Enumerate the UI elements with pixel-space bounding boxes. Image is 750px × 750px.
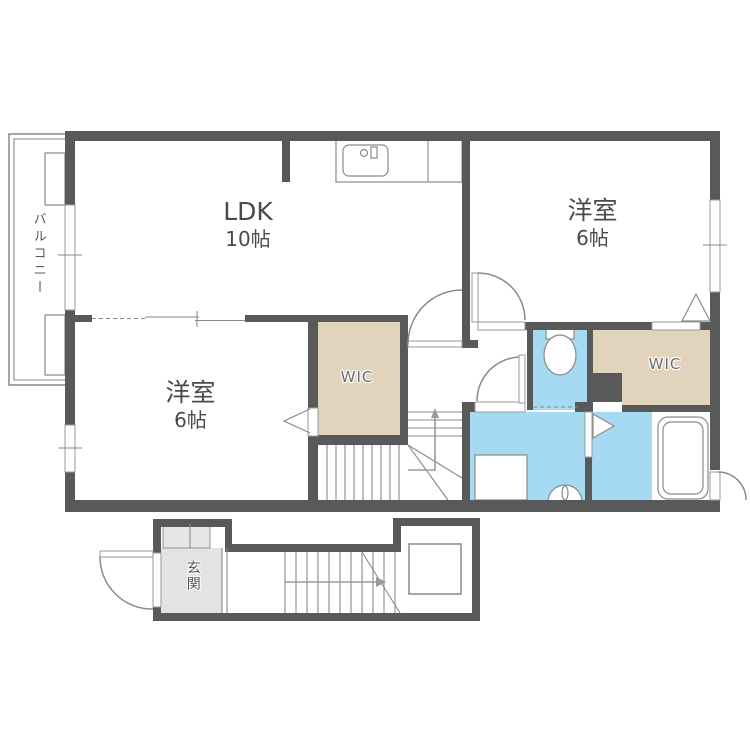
washroom-door-opening bbox=[475, 402, 525, 412]
entrance-door-swing bbox=[100, 557, 153, 609]
wall bbox=[75, 315, 92, 322]
side-door-opening bbox=[710, 472, 720, 500]
ldk-name: LDK bbox=[183, 197, 313, 227]
wall bbox=[710, 131, 720, 200]
wic-left-label: WIC bbox=[314, 368, 400, 386]
entrance-door-opening bbox=[153, 553, 161, 607]
wall bbox=[527, 326, 533, 410]
bedroom-left-label: 洋室 6帖 bbox=[133, 378, 248, 432]
balcony-storage-box bbox=[45, 153, 65, 205]
balcony-label: バルコニー bbox=[30, 212, 46, 297]
wic-right-floor bbox=[593, 326, 622, 373]
stairs-lower bbox=[285, 552, 400, 613]
wall bbox=[462, 131, 470, 348]
bedroom-left-size: 6帖 bbox=[133, 408, 248, 432]
wall bbox=[622, 405, 712, 412]
wall bbox=[65, 131, 75, 205]
wall bbox=[282, 133, 290, 182]
wic-left-folding-door bbox=[284, 409, 310, 433]
wall bbox=[153, 519, 161, 553]
wall bbox=[318, 435, 405, 445]
washroom-door-leaf bbox=[519, 355, 525, 403]
wall bbox=[245, 315, 408, 322]
wall bbox=[585, 457, 592, 500]
stair-direction-line bbox=[408, 416, 435, 470]
bedroom-left-name: 洋室 bbox=[133, 378, 248, 408]
sink-faucet-icon bbox=[371, 147, 377, 158]
wall bbox=[700, 322, 712, 330]
wic-right-label: WIC bbox=[622, 355, 708, 373]
wall bbox=[225, 544, 397, 552]
ldk-door-leaf bbox=[408, 341, 462, 347]
side-door-swing bbox=[718, 472, 746, 500]
wall bbox=[593, 373, 622, 402]
toilet-bowl bbox=[544, 335, 576, 375]
bathtub bbox=[658, 417, 708, 499]
bedroom-right-size: 6帖 bbox=[535, 226, 650, 250]
balcony-storage-box bbox=[45, 315, 65, 375]
wic-left-door-opening bbox=[308, 408, 318, 436]
sink-drain-icon bbox=[361, 150, 368, 157]
wall bbox=[462, 402, 475, 412]
wall bbox=[462, 340, 478, 348]
ldk-door-swing bbox=[408, 290, 462, 344]
bedroom-right-door-leaf bbox=[472, 273, 478, 322]
wall bbox=[462, 412, 470, 500]
bedroom-right-door-swing bbox=[478, 273, 525, 320]
bedroom-right-door-opening bbox=[478, 322, 525, 330]
wall bbox=[308, 322, 318, 408]
entrance-label: 玄関 bbox=[184, 560, 201, 592]
wash-basin-drain-icon bbox=[562, 486, 568, 500]
bedroom-right-window bbox=[710, 200, 720, 292]
floor-plan: バルコニー LDK 10帖 洋室 6帖 洋室 6帖 WIC WIC 玄関 bbox=[0, 0, 750, 750]
wic-right-door-opening bbox=[652, 322, 700, 330]
bedroom-right-label: 洋室 6帖 bbox=[535, 196, 650, 250]
ldk-label: LDK 10帖 bbox=[183, 197, 313, 251]
up-arrow-icon bbox=[431, 408, 439, 418]
washroom-door-swing bbox=[477, 357, 519, 401]
wall bbox=[153, 519, 232, 527]
wall bbox=[400, 317, 408, 445]
wall bbox=[65, 500, 720, 512]
bathroom-door-opening bbox=[585, 412, 592, 457]
wic-right-folding-door bbox=[682, 294, 710, 321]
washing-machine-pan bbox=[475, 455, 527, 500]
balcony-window bbox=[65, 205, 75, 310]
wall bbox=[65, 310, 75, 425]
wall bbox=[587, 326, 593, 412]
wall bbox=[308, 436, 318, 500]
wall bbox=[397, 518, 480, 526]
bedroom-right-name: 洋室 bbox=[535, 196, 650, 226]
wall bbox=[710, 292, 720, 470]
entrance-door-leaf bbox=[100, 551, 153, 557]
wall bbox=[472, 518, 480, 621]
storage-box bbox=[409, 544, 461, 594]
ldk-size: 10帖 bbox=[183, 227, 313, 251]
wall bbox=[65, 131, 720, 141]
wall bbox=[153, 613, 480, 621]
shoe-cabinet bbox=[163, 524, 210, 548]
